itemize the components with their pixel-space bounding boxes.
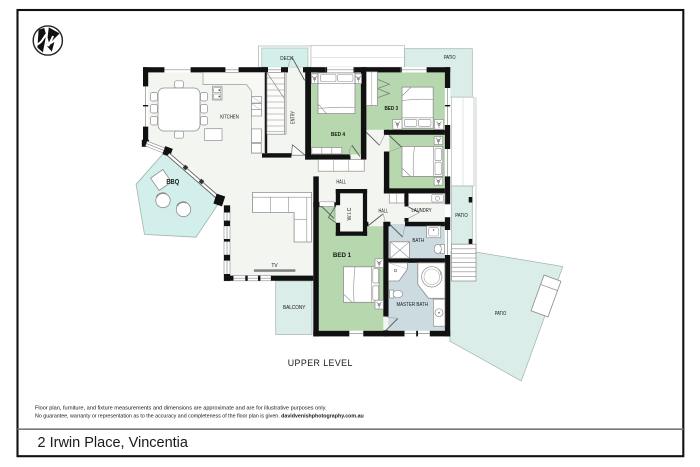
svg-text:BED 1: BED 1 bbox=[333, 252, 352, 259]
svg-text:2 Irwin Place, Vincentia: 2 Irwin Place, Vincentia bbox=[38, 435, 189, 451]
svg-text:PATIO: PATIO bbox=[455, 213, 468, 219]
svg-text:BED 4: BED 4 bbox=[331, 132, 346, 138]
svg-text:ENTRY: ENTRY bbox=[291, 111, 297, 124]
svg-text:W.I.C: W.I.C bbox=[347, 207, 353, 220]
svg-text:BATH: BATH bbox=[412, 238, 424, 244]
svg-text:HALL: HALL bbox=[336, 179, 346, 185]
svg-text:MASTER BATH: MASTER BATH bbox=[396, 302, 428, 308]
svg-text:PATIO: PATIO bbox=[495, 311, 507, 317]
svg-text:DECK: DECK bbox=[280, 56, 293, 62]
svg-text:BED 3: BED 3 bbox=[384, 106, 398, 112]
svg-text:LAUNDRY: LAUNDRY bbox=[412, 208, 432, 214]
svg-text:Floor plan, furniture, and fix: Floor plan, furniture, and fixture measu… bbox=[35, 406, 327, 412]
svg-text:HALL: HALL bbox=[379, 209, 389, 215]
svg-text:No guarantee, warranty or repr: No guarantee, warranty or representation… bbox=[35, 414, 364, 420]
svg-text:PATIO: PATIO bbox=[444, 55, 456, 61]
svg-text:BBQ: BBQ bbox=[166, 177, 179, 186]
svg-text:KITCHEN: KITCHEN bbox=[220, 115, 239, 121]
svg-text:TV: TV bbox=[271, 263, 278, 269]
svg-text:UPPER LEVEL: UPPER LEVEL bbox=[288, 358, 353, 368]
svg-text:BALCONY: BALCONY bbox=[283, 305, 306, 311]
